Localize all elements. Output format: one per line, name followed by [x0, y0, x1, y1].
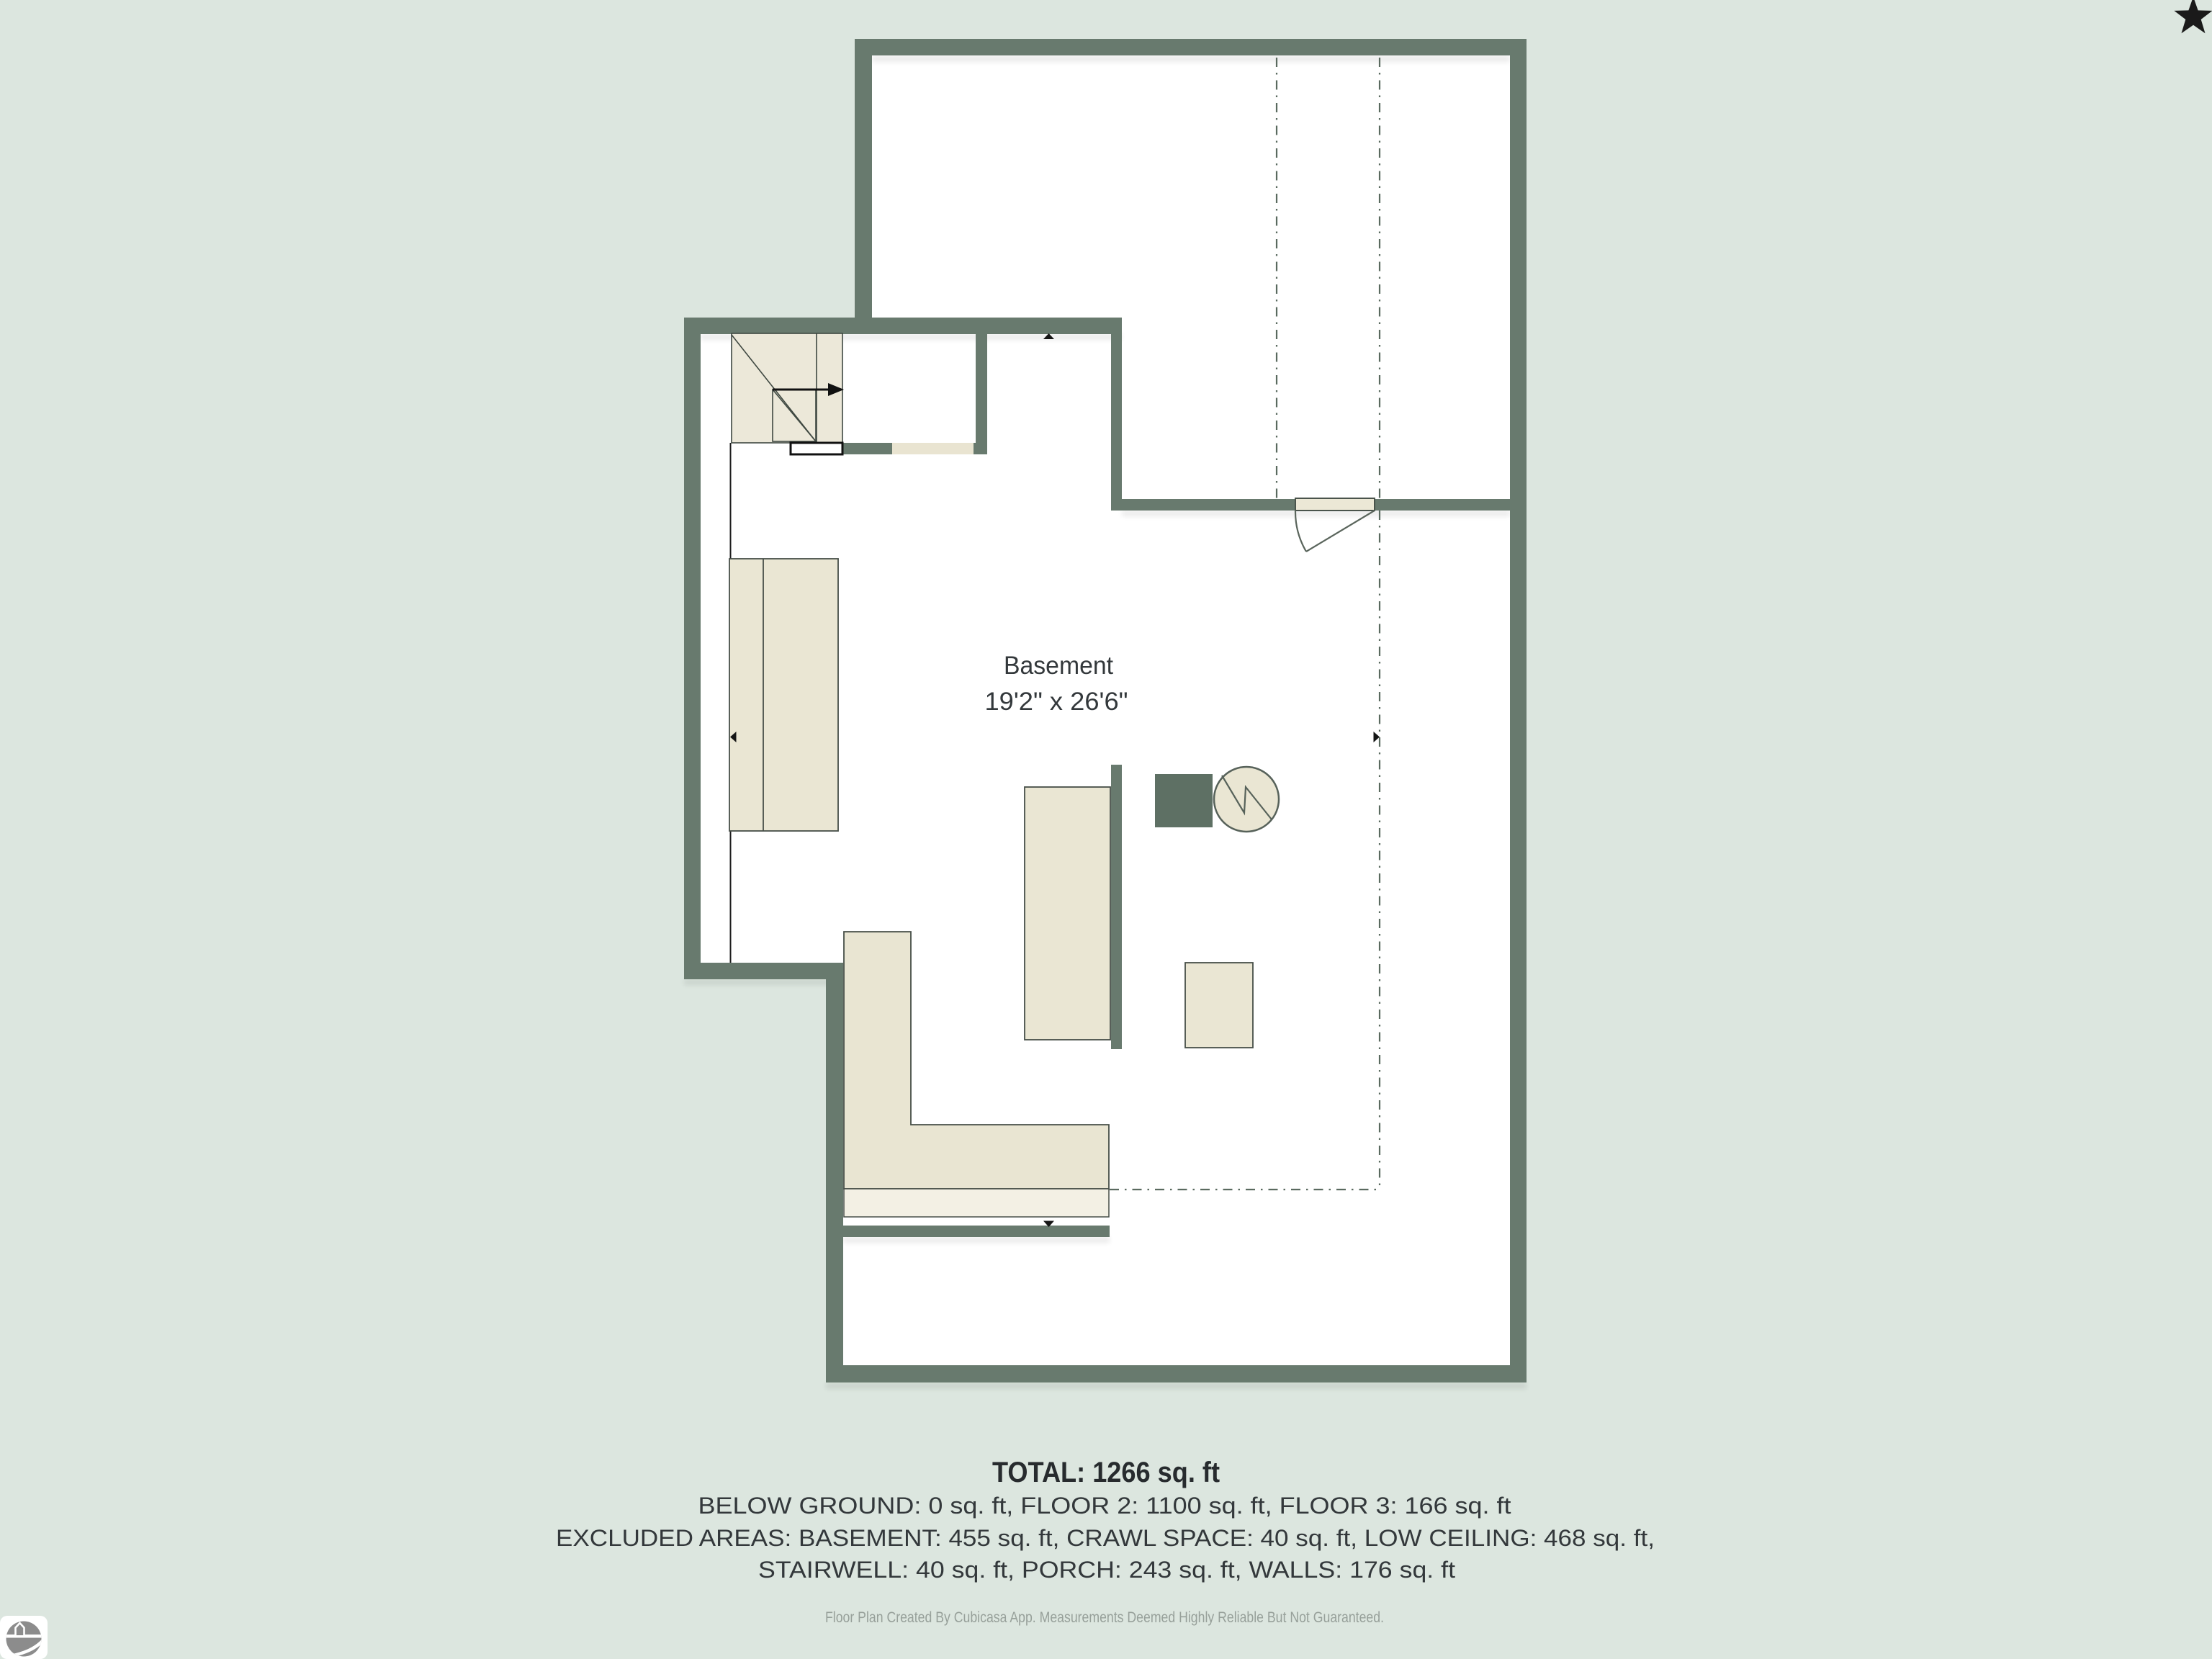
svg-text:TOTAL: 1266 sq. ft: TOTAL: 1266 sq. ft	[992, 1457, 1220, 1488]
svg-text:STAIRWELL: 40 sq. ft, PORCH: 2: STAIRWELL: 40 sq. ft, PORCH: 243 sq. ft,…	[758, 1557, 1455, 1583]
svg-text:Basement: Basement	[1004, 652, 1113, 680]
svg-text:Floor Plan Created By Cubicasa: Floor Plan Created By Cubicasa App. Meas…	[825, 1609, 1384, 1626]
svg-text:19'2" x 26'6": 19'2" x 26'6"	[985, 688, 1128, 716]
svg-text:EXCLUDED AREAS: BASEMENT: 455: EXCLUDED AREAS: BASEMENT: 455 sq. ft, CR…	[556, 1525, 1655, 1551]
svg-text:BELOW GROUND: 0 sq. ft, FLOOR: BELOW GROUND: 0 sq. ft, FLOOR 2: 1100 sq…	[698, 1493, 1511, 1519]
